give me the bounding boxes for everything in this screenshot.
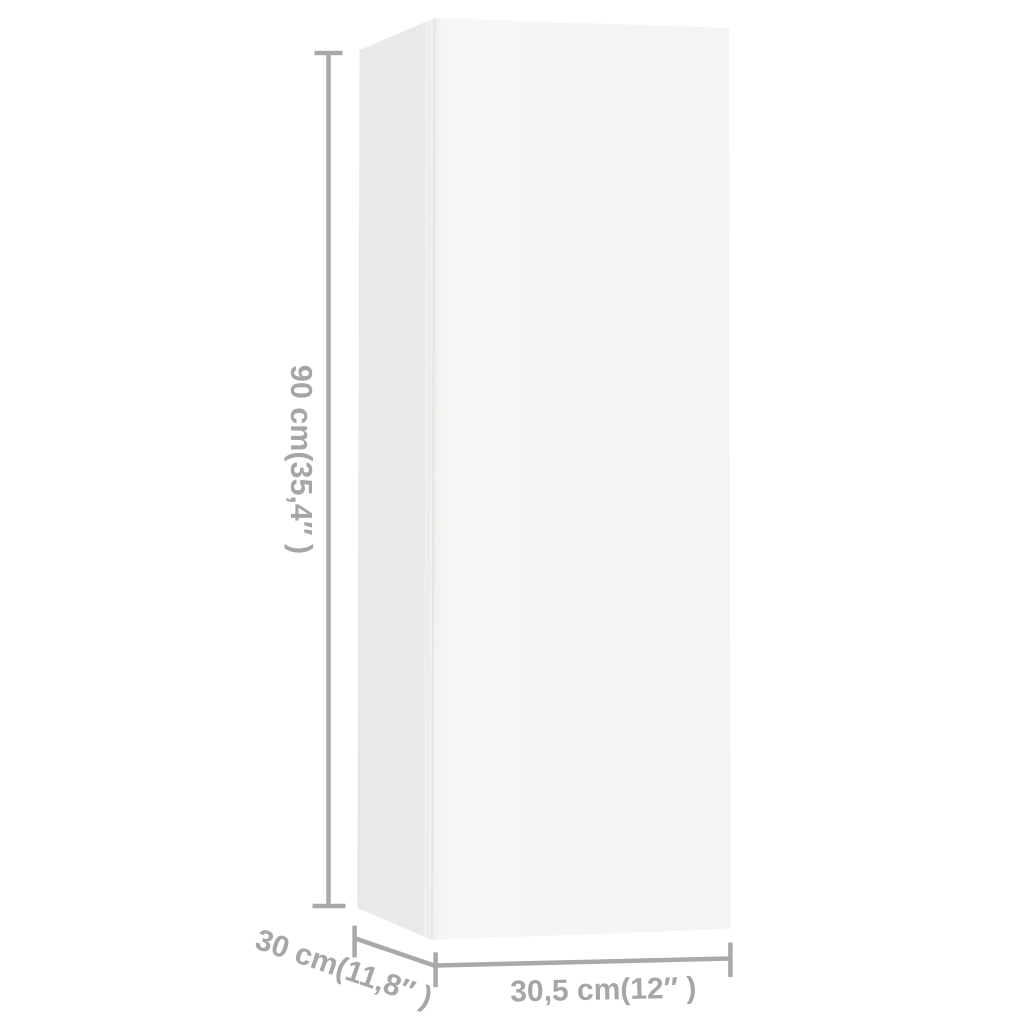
svg-text:90 cm(35,4″ ): 90 cm(35,4″ ) bbox=[284, 365, 318, 554]
svg-text:30,5 cm(12″ ): 30,5 cm(12″ ) bbox=[510, 972, 697, 1009]
